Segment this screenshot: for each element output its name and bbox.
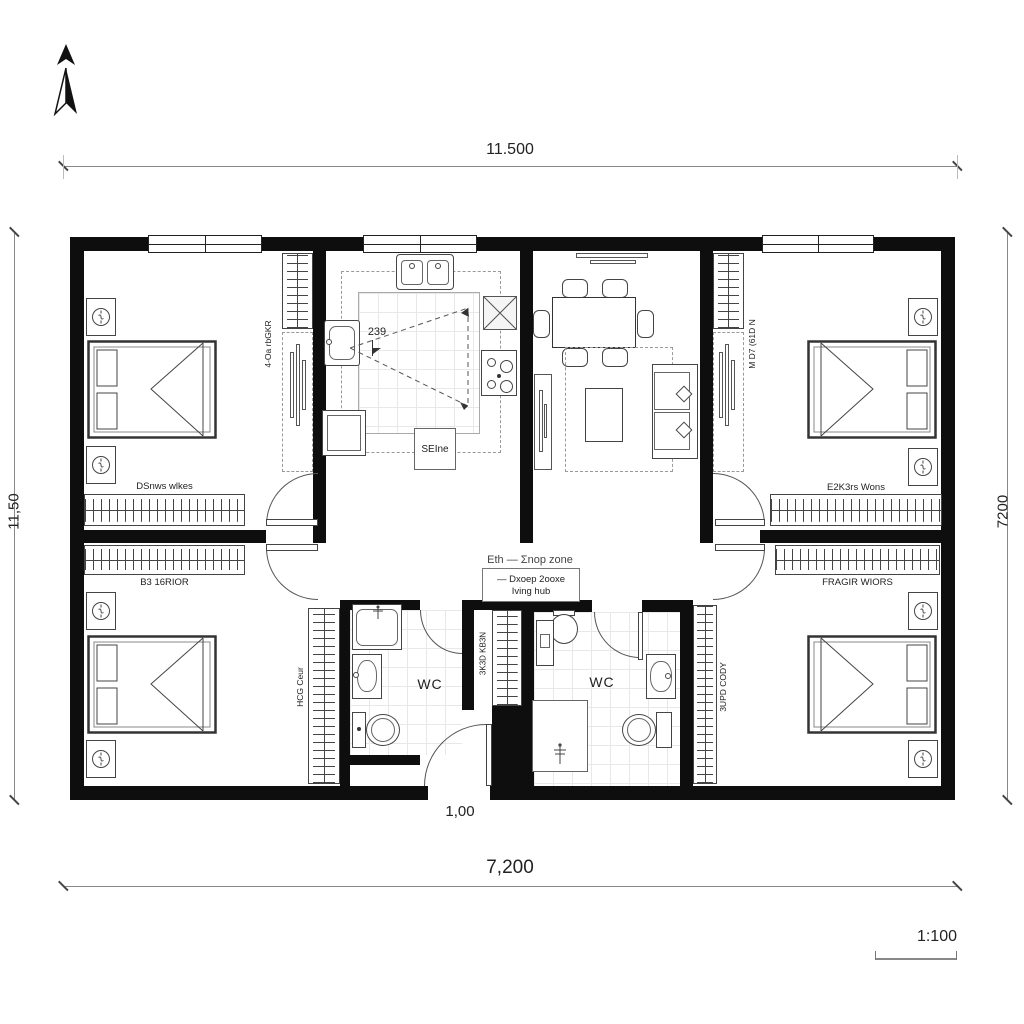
faucet-icon bbox=[353, 672, 359, 678]
nightstand bbox=[86, 592, 116, 630]
oven-inner bbox=[327, 415, 361, 451]
wall-kitchen-living bbox=[520, 251, 533, 543]
lamp-icon bbox=[912, 600, 934, 622]
hall-box-line2: Iving hub bbox=[512, 586, 551, 597]
wall-right bbox=[941, 237, 955, 800]
door-leaf-bedroom-tl bbox=[266, 519, 318, 526]
door-leaf-bedroom-bl bbox=[266, 544, 318, 551]
flush-button bbox=[357, 727, 361, 731]
wall-bottom-right bbox=[490, 786, 955, 800]
knob-icon bbox=[326, 339, 332, 345]
dresser bbox=[290, 352, 294, 418]
wall-bottom-left bbox=[70, 786, 428, 800]
wardrobe-tl bbox=[84, 494, 245, 526]
bed-double bbox=[87, 635, 217, 734]
burner bbox=[487, 380, 496, 389]
dresser bbox=[731, 360, 735, 410]
tv-icon bbox=[539, 390, 543, 452]
dimension-line-top bbox=[63, 166, 957, 167]
dresser bbox=[296, 344, 300, 426]
closet-hatch-tr bbox=[713, 253, 744, 329]
leader-flag bbox=[373, 348, 381, 354]
wardrobe-label-bl: B3 16RIOR bbox=[84, 577, 245, 588]
burner bbox=[487, 358, 496, 367]
bed-double bbox=[807, 340, 937, 439]
dresser bbox=[725, 344, 729, 426]
wardrobe-label-tl: DSnws wlkes bbox=[84, 481, 245, 492]
wall-mid-right bbox=[760, 530, 955, 543]
hall-box-line1: — Dxoep 2ooxe bbox=[497, 574, 565, 585]
dimension-top-label: 11.500 bbox=[430, 141, 590, 159]
extension-line bbox=[63, 155, 64, 179]
lamp-icon bbox=[90, 454, 112, 476]
closet-label-bl: HCG Ceur bbox=[295, 651, 305, 723]
window bbox=[148, 235, 262, 253]
room-label-wc-left: WC bbox=[400, 676, 460, 692]
faucet-icon bbox=[435, 263, 441, 269]
wall-living-bedroom-tr bbox=[700, 251, 713, 543]
dimension-bottom-label: 7,200 bbox=[430, 857, 590, 879]
closet-label-tl: 4-Oa rbGKR bbox=[263, 304, 273, 384]
window bbox=[363, 235, 477, 253]
wall-wc-left-west bbox=[340, 600, 350, 786]
tv-icon bbox=[544, 404, 547, 438]
wardrobe-bl bbox=[84, 545, 245, 575]
dimension-right-label: 7200 bbox=[995, 472, 1012, 552]
burner bbox=[500, 380, 513, 393]
door-leaf-wc-right bbox=[638, 612, 643, 660]
closet-label-br: 3UPD CODY bbox=[718, 651, 728, 723]
wall-wc-left-south-stub bbox=[350, 755, 420, 765]
door-arc-bedroom-tl bbox=[266, 473, 318, 525]
closet-hatch-bl bbox=[308, 608, 340, 784]
wall-mid-left bbox=[70, 530, 266, 543]
dresser bbox=[302, 360, 306, 410]
bed-double bbox=[87, 340, 217, 439]
nightstand bbox=[908, 592, 938, 630]
nightstand bbox=[908, 298, 938, 336]
shower-icon bbox=[551, 742, 569, 768]
faucet-icon bbox=[409, 263, 415, 269]
dining-chair bbox=[637, 310, 654, 338]
lamp-icon bbox=[912, 456, 934, 478]
door-arc-bedroom-bl bbox=[266, 548, 318, 600]
entry-dimension-label: 1,00 bbox=[420, 803, 500, 820]
dining-chair bbox=[562, 279, 588, 298]
room-label-wc-right: WC bbox=[572, 674, 632, 690]
door-leaf-bedroom-tr bbox=[715, 519, 765, 526]
wardrobe-label-tr: E2K3rs Wons bbox=[770, 482, 942, 493]
dining-table bbox=[552, 297, 636, 348]
door-arc-bedroom-tr bbox=[713, 473, 765, 525]
dresser bbox=[719, 352, 723, 418]
closet-label-tr: M D7 (61D N bbox=[747, 304, 757, 384]
nightstand bbox=[86, 298, 116, 336]
scale-label: 1:100 bbox=[880, 928, 957, 946]
mid-closet-label: 3K3D KB3N bbox=[479, 618, 488, 690]
closet-hatch-tl bbox=[282, 253, 313, 329]
nightstand bbox=[908, 448, 938, 486]
wardrobe-tr bbox=[770, 494, 942, 526]
extension-line bbox=[957, 155, 958, 179]
mid-closet-hatch bbox=[492, 610, 522, 706]
nightstand bbox=[908, 740, 938, 778]
nightstand bbox=[86, 446, 116, 484]
scale-tick bbox=[875, 951, 876, 960]
nightstand bbox=[86, 740, 116, 778]
sideboard bbox=[576, 253, 648, 258]
door-leaf-bedroom-br bbox=[715, 544, 765, 551]
kitchen-island-label: SEIne bbox=[421, 444, 448, 455]
bed-double bbox=[807, 635, 937, 734]
wardrobe-br bbox=[775, 545, 940, 575]
lamp-icon bbox=[912, 748, 934, 770]
north-arrow-icon bbox=[46, 44, 86, 120]
shower-mixer-icon bbox=[370, 605, 386, 623]
burner-dot bbox=[497, 374, 501, 378]
window bbox=[762, 235, 874, 253]
closet-hatch-br bbox=[693, 605, 717, 784]
dining-chair bbox=[602, 279, 628, 298]
dining-chair bbox=[533, 310, 550, 338]
door-leaf-entry bbox=[486, 724, 492, 786]
kitchen-dimension-label: 239 bbox=[360, 326, 394, 338]
tv-unit bbox=[534, 374, 552, 470]
door-arc-bedroom-br bbox=[713, 548, 765, 600]
lamp-icon bbox=[912, 306, 934, 328]
floor-plan-drawing: 11.500 7,200 11,50 7200 bbox=[0, 0, 1024, 1024]
toilet-tank bbox=[656, 712, 672, 748]
lamp-icon bbox=[90, 748, 112, 770]
dimension-left-label: 11,50 bbox=[6, 472, 23, 552]
toilet-bowl bbox=[550, 614, 578, 644]
work-triangle bbox=[340, 298, 480, 416]
wall-left bbox=[70, 237, 84, 800]
toilet-bowl-inner bbox=[627, 718, 651, 742]
coffee-table bbox=[585, 388, 623, 442]
scale-bar bbox=[875, 958, 957, 960]
wall-wc-left-east bbox=[462, 600, 474, 710]
wardrobe-label-br: FRAGIR WIORS bbox=[775, 577, 940, 588]
scale-tick bbox=[956, 951, 957, 960]
hall-zone-label: Eth — Σnop zone bbox=[468, 554, 592, 566]
sink-bowl bbox=[357, 660, 377, 692]
toilet-bowl-inner bbox=[371, 718, 395, 742]
cabinet-door bbox=[540, 634, 550, 648]
dimension-line-bottom bbox=[63, 886, 957, 887]
wall-wc-right-east bbox=[680, 600, 693, 786]
faucet-icon bbox=[665, 673, 671, 679]
sideboard-shelf bbox=[590, 260, 636, 264]
lamp-icon bbox=[90, 306, 112, 328]
burner bbox=[500, 360, 513, 373]
fridge bbox=[483, 296, 517, 330]
wall-entry-block bbox=[492, 706, 522, 786]
lamp-icon bbox=[90, 600, 112, 622]
